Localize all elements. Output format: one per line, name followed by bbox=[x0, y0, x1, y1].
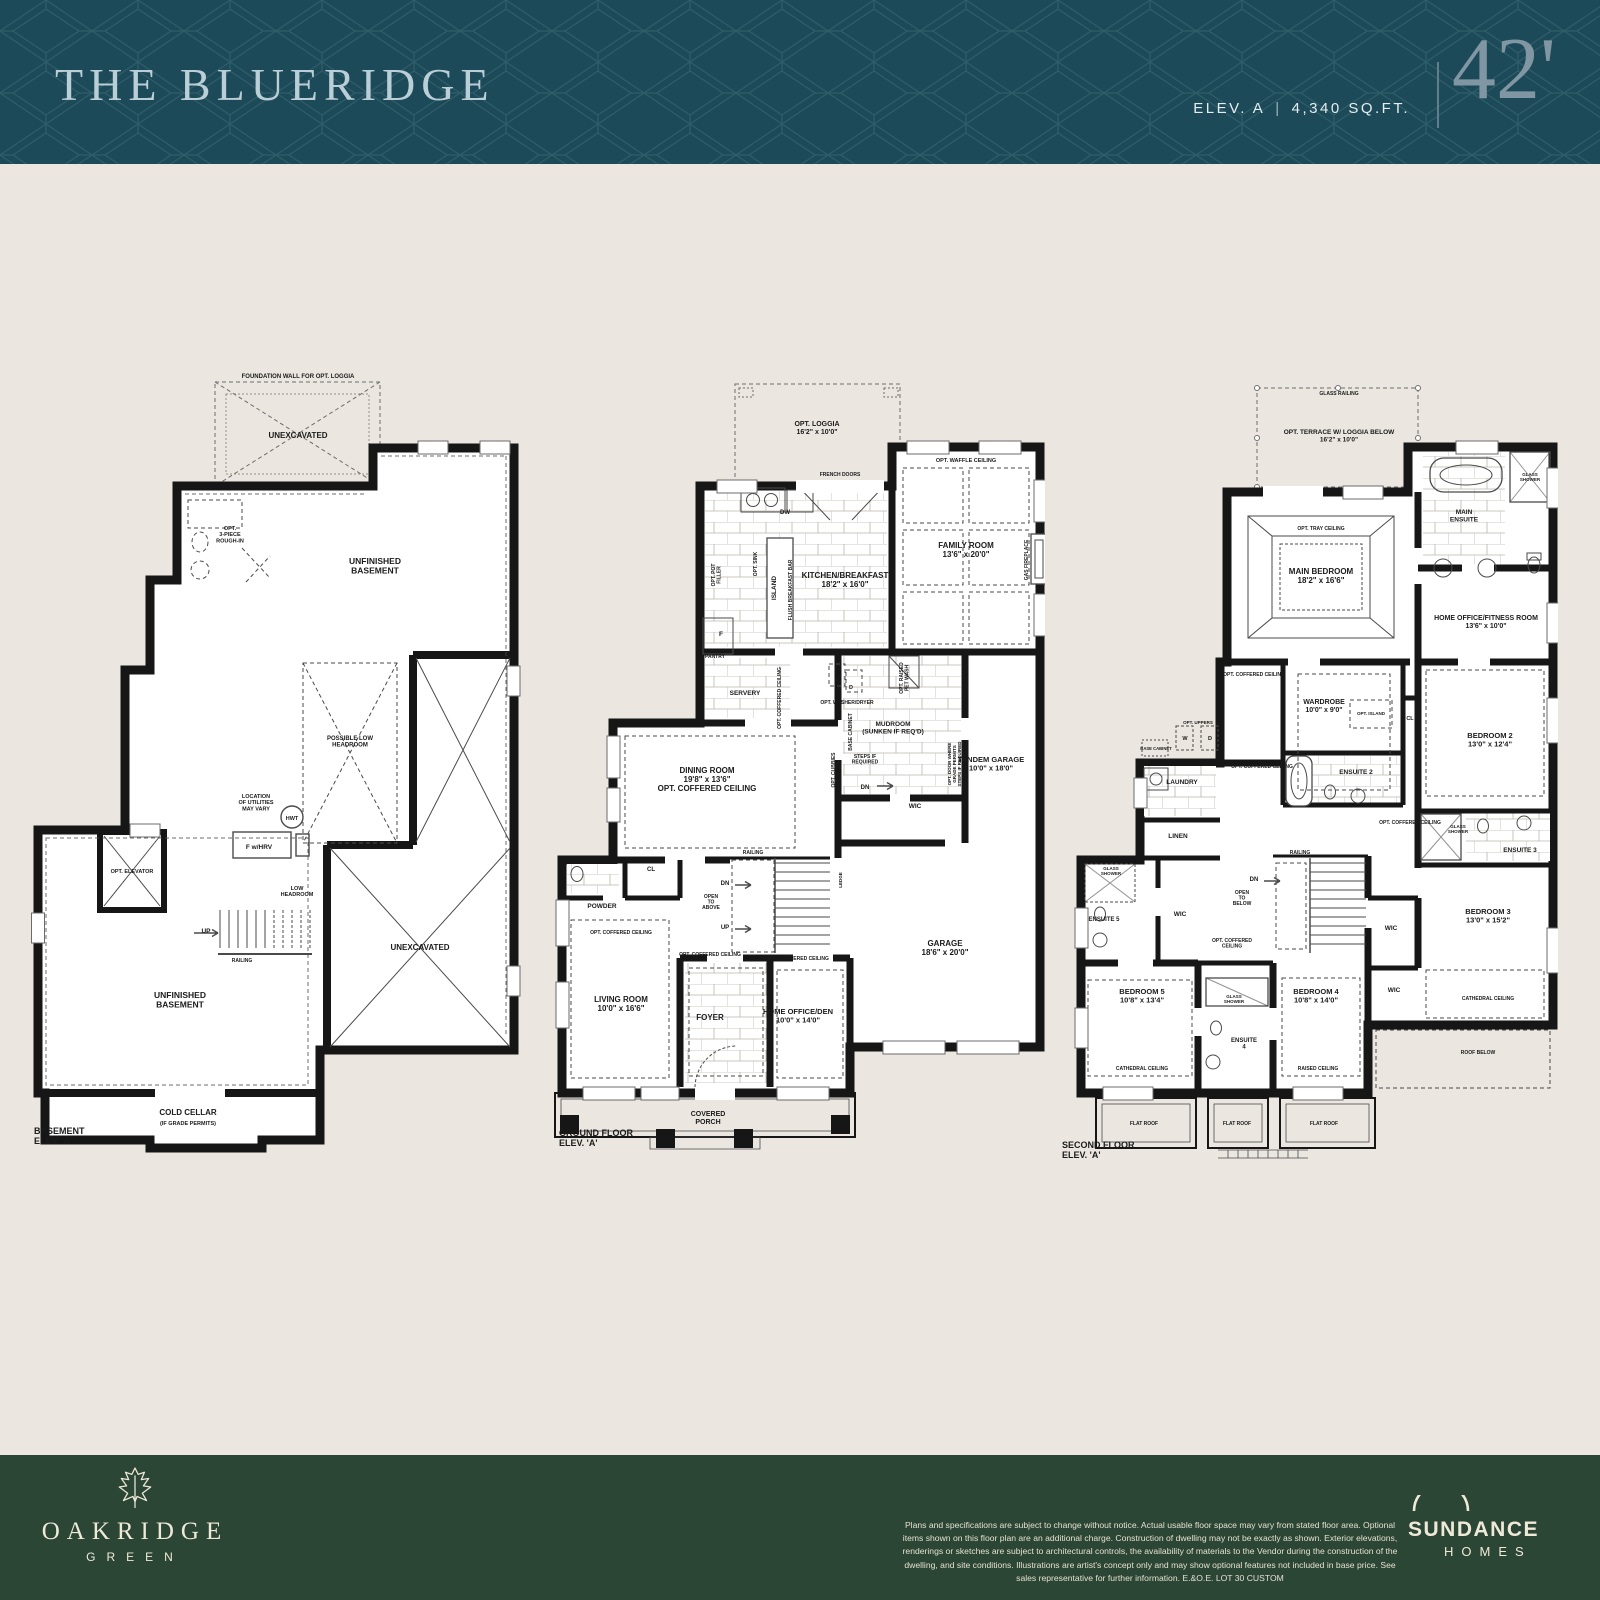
floorplan-brochure: { "header": { "title": "THE BLUERIDGE", … bbox=[0, 0, 1600, 1600]
disclaimer-text: Plans and specifications are subject to … bbox=[900, 1519, 1400, 1586]
plan-label: WIC bbox=[1174, 911, 1187, 918]
community-logo: OAKRIDGE GREEN bbox=[40, 1467, 230, 1564]
oak-leaf-icon bbox=[117, 1467, 153, 1509]
plan-label: OPT. WASHER/DRYER bbox=[820, 700, 874, 706]
plan-label: OPT. UPPERS bbox=[1183, 720, 1213, 725]
plan-label: F bbox=[719, 631, 723, 638]
plan-label: OPT. LOGGIA16'2" x 10'0" bbox=[794, 421, 839, 436]
plan-label: UNFINISHEDBASEMENT bbox=[154, 990, 206, 1010]
plan-label: FRENCH DOORS bbox=[820, 472, 861, 478]
plan-label: OPT. CUBBIES bbox=[831, 752, 837, 788]
page-title: THE BLUERIDGE bbox=[55, 58, 495, 111]
plan-label: (IF GRADE PERMITS) bbox=[160, 1121, 216, 1127]
plan-label: FOYER bbox=[696, 1013, 724, 1022]
second-roof-elements bbox=[1096, 1098, 1375, 1158]
header-divider bbox=[1437, 62, 1439, 128]
header-banner: THE BLUERIDGE ELEV. A|4,340 SQ.FT. 42' bbox=[0, 0, 1600, 164]
plan-label: OPT. COFFERED CEILING bbox=[679, 952, 741, 958]
lot-width-label: 42' bbox=[1452, 26, 1556, 114]
plan-label: SERVERY bbox=[730, 690, 761, 697]
plan-label: DN bbox=[1250, 877, 1259, 883]
plan-label: BEDROOM 410'8" x 14'0" bbox=[1293, 987, 1339, 1004]
plan-label: WIC bbox=[909, 803, 922, 810]
plan-label: BASE CABINET bbox=[848, 713, 854, 751]
plan-label: POWDER bbox=[587, 903, 617, 910]
plan-label: GLASSSHOWER bbox=[1224, 994, 1245, 1004]
plan-label: LOCATIONOF UTILITIESMAY VARY bbox=[238, 794, 273, 812]
plan-label: FOUNDATION WALL FOR OPT. LOGGIA bbox=[242, 374, 355, 380]
ground-floor-plan: OPT. LOGGIA16'2" x 10'0"FRENCH DOORSDWOP… bbox=[545, 368, 1045, 1168]
plan-label: ROOF BELOW bbox=[1461, 1050, 1496, 1056]
plan-label: GROUND FLOORELEV. 'A' bbox=[559, 1128, 633, 1148]
plan-label: UNEXCAVATED bbox=[268, 431, 327, 440]
plan-label: DN bbox=[721, 881, 730, 887]
footer-bar: OAKRIDGE GREEN Plans and specifications … bbox=[0, 1455, 1600, 1600]
plan-label: RAILING bbox=[743, 850, 764, 856]
plan-label: F w/HRV bbox=[246, 844, 273, 851]
plan-label: OPT. ISLAND bbox=[1357, 711, 1386, 716]
plan-label: CL bbox=[1406, 716, 1414, 722]
plan-label: CATHEDRAL CEILING bbox=[1116, 1066, 1168, 1072]
basement-footprint bbox=[38, 448, 514, 1148]
plan-label: GLASSSHOWER bbox=[1101, 866, 1122, 876]
plan-label: PANTRY bbox=[705, 654, 726, 660]
plan-label: SECOND FLOORELEV. 'A' bbox=[1062, 1140, 1135, 1160]
plan-label: BEDROOM 213'0" x 12'4" bbox=[1467, 731, 1512, 748]
plan-label: GAS FIREPLACE bbox=[1024, 539, 1030, 580]
plan-label: WARDROBE10'0" x 9'0" bbox=[1303, 699, 1345, 714]
plan-label: WIC bbox=[1385, 925, 1398, 932]
plan-label: COVEREDPORCH bbox=[691, 1111, 726, 1126]
plan-label: BEDROOM 510'8" x 13'4" bbox=[1119, 987, 1164, 1004]
plan-label: LIVING ROOM10'0" x 16'6" bbox=[594, 995, 648, 1013]
plan-label: FLAT ROOF bbox=[1223, 1121, 1251, 1127]
elevation-label: ELEV. A bbox=[1193, 100, 1265, 117]
plan-label: COLD CELLAR bbox=[159, 1108, 217, 1117]
plan-label: LAUNDRY bbox=[1166, 779, 1198, 786]
basement-floor-plan: FOUNDATION WALL FOR OPT. LOGGIAUNEXCAVAT… bbox=[30, 368, 530, 1168]
plan-label: OPT. COFFERED CEILING bbox=[777, 667, 783, 729]
plan-label: ENSUITE 2 bbox=[1339, 769, 1373, 776]
builder-logo: SUNDANCE HOMES bbox=[1408, 1495, 1560, 1559]
plan-label: STEPS IFREQUIRED bbox=[852, 754, 879, 766]
plan-label: OPT. COFFERED CEILING bbox=[767, 956, 829, 962]
plan-label: BASE CABINET bbox=[1140, 746, 1172, 751]
plan-label: OPT. TERRACE W/ LOGGIA BELOW16'2" x 10'0… bbox=[1284, 429, 1395, 443]
plan-label: GARAGE18'6" x 20'0" bbox=[922, 939, 969, 957]
plan-label: GLASS RAILING bbox=[1319, 391, 1358, 397]
plan-label: CATHEDRAL CEILING bbox=[1462, 996, 1514, 1002]
plan-label: OPT. SINK bbox=[753, 551, 759, 576]
second-plan-drawing: GLASS RAILINGOPT. TERRACE W/ LOGGIA BELO… bbox=[1058, 368, 1558, 1168]
plan-label: FLAT ROOF bbox=[1310, 1121, 1338, 1127]
plan-label: RAISED CEILING bbox=[1298, 1066, 1339, 1072]
community-logo-sub: GREEN bbox=[40, 1550, 230, 1564]
plan-label: MAIN BEDROOM18'2" x 16'6" bbox=[1289, 567, 1354, 585]
ground-plan-drawing: OPT. LOGGIA16'2" x 10'0"FRENCH DOORSDWOP… bbox=[545, 368, 1045, 1168]
plan-label: FLUSH BREAKFAST BAR bbox=[788, 559, 794, 620]
plan-label: RAILING bbox=[232, 958, 253, 964]
plan-label: OPT. ELEVATOR bbox=[111, 869, 154, 875]
plan-label: WIC bbox=[1388, 987, 1401, 994]
plan-label: D bbox=[849, 685, 853, 691]
plan-label: POSSIBLE LOWHEADROOM bbox=[327, 736, 373, 749]
plan-label: BEDROOM 313'0" x 15'2" bbox=[1465, 907, 1510, 924]
plan-label: ENSUITE 5 bbox=[1088, 917, 1120, 923]
plan-label: RAILING bbox=[1290, 850, 1311, 856]
separator: | bbox=[1275, 100, 1281, 117]
plan-label: OPT. POTFILLER bbox=[711, 564, 723, 587]
plan-label: OPT. RAISEDPET WASH bbox=[899, 662, 911, 694]
plan-label: ISLAND bbox=[771, 576, 778, 601]
plan-label: UNFINISHEDBASEMENT bbox=[349, 556, 401, 576]
plan-label: UP bbox=[721, 925, 729, 931]
plan-label: CL bbox=[647, 867, 655, 873]
plan-label: OPT. COFFERED CEILING bbox=[1231, 764, 1293, 770]
community-logo-name: OAKRIDGE bbox=[40, 1518, 230, 1546]
plan-label: OPT. COFFERED CEILING bbox=[590, 930, 652, 936]
plan-label: UP bbox=[201, 928, 211, 935]
builder-logo-name: SUNDANCE bbox=[1408, 1518, 1560, 1542]
plan-label: UNEXCAVATED bbox=[390, 943, 449, 952]
builder-logo-sub: HOMES bbox=[1444, 1544, 1560, 1559]
plan-label: W bbox=[1182, 736, 1188, 742]
plan-label: GLASSSHOWER bbox=[1520, 472, 1541, 482]
plan-label: W bbox=[834, 677, 840, 683]
plan-label: GLASSSHOWER bbox=[1448, 824, 1469, 834]
plan-label: FLAT ROOF bbox=[1130, 1121, 1158, 1127]
plan-label: ENSUITE 3 bbox=[1503, 847, 1537, 854]
plan-label: LINEN bbox=[1168, 833, 1188, 840]
plan-label: DN bbox=[861, 785, 870, 791]
plan-label: LEDGE bbox=[838, 872, 843, 888]
area-label: 4,340 SQ.FT. bbox=[1292, 100, 1410, 117]
basement-plan-drawing: FOUNDATION WALL FOR OPT. LOGGIAUNEXCAVAT… bbox=[30, 368, 530, 1168]
plan-label: D bbox=[1208, 736, 1212, 742]
plan-label: OPT. TRAY CEILING bbox=[1297, 526, 1344, 532]
plan-label: FAMILY ROOM13'6" x 20'0" bbox=[938, 541, 994, 559]
plan-label: OPT. COFFERED CEILING bbox=[1379, 820, 1441, 826]
sun-arc-icon bbox=[1408, 1495, 1478, 1513]
plan-label: HWT bbox=[286, 816, 299, 822]
plan-label: OPT. WAFFLE CEILING bbox=[936, 458, 996, 464]
elevation-area-label: ELEV. A|4,340 SQ.FT. bbox=[1193, 100, 1410, 117]
plan-label: OPT. COFFERED CEILING bbox=[1223, 672, 1285, 678]
second-floor-plan: GLASS RAILINGOPT. TERRACE W/ LOGGIA BELO… bbox=[1058, 368, 1558, 1168]
plan-label: DW bbox=[780, 510, 790, 516]
